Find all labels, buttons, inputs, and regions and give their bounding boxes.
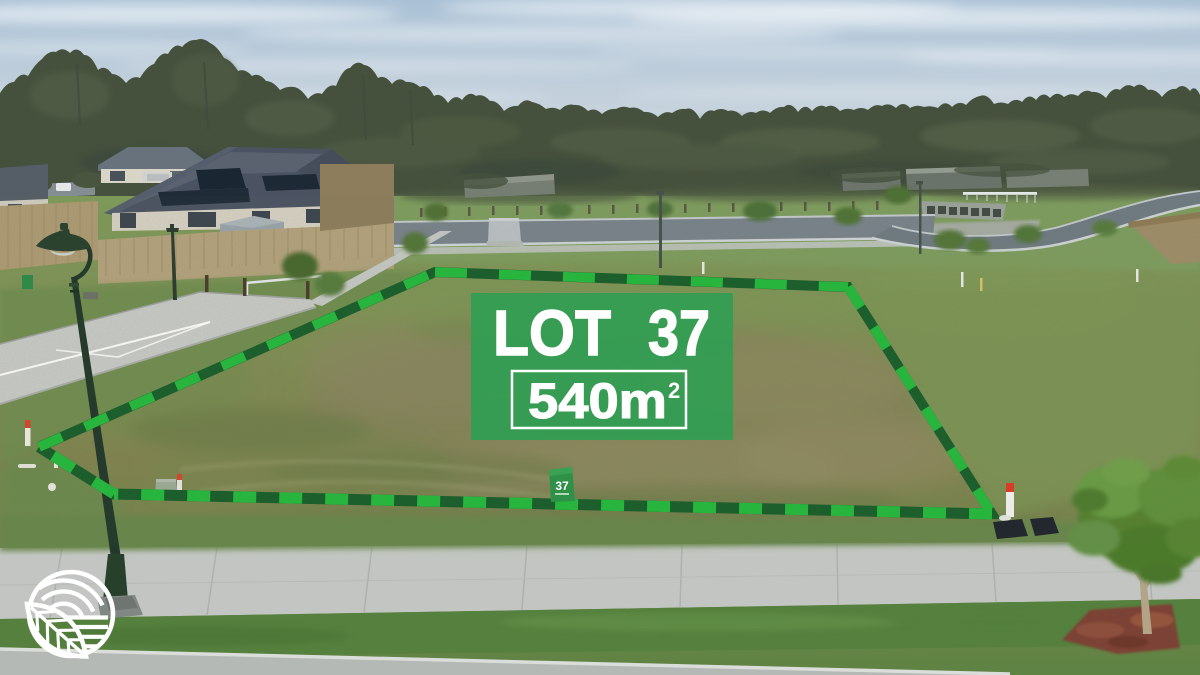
svg-text:540m: 540m: [528, 373, 667, 429]
svg-text:37: 37: [648, 297, 710, 369]
svg-text:37: 37: [555, 479, 569, 493]
svg-text:LOT: LOT: [493, 297, 611, 369]
svg-text:2: 2: [668, 378, 680, 403]
